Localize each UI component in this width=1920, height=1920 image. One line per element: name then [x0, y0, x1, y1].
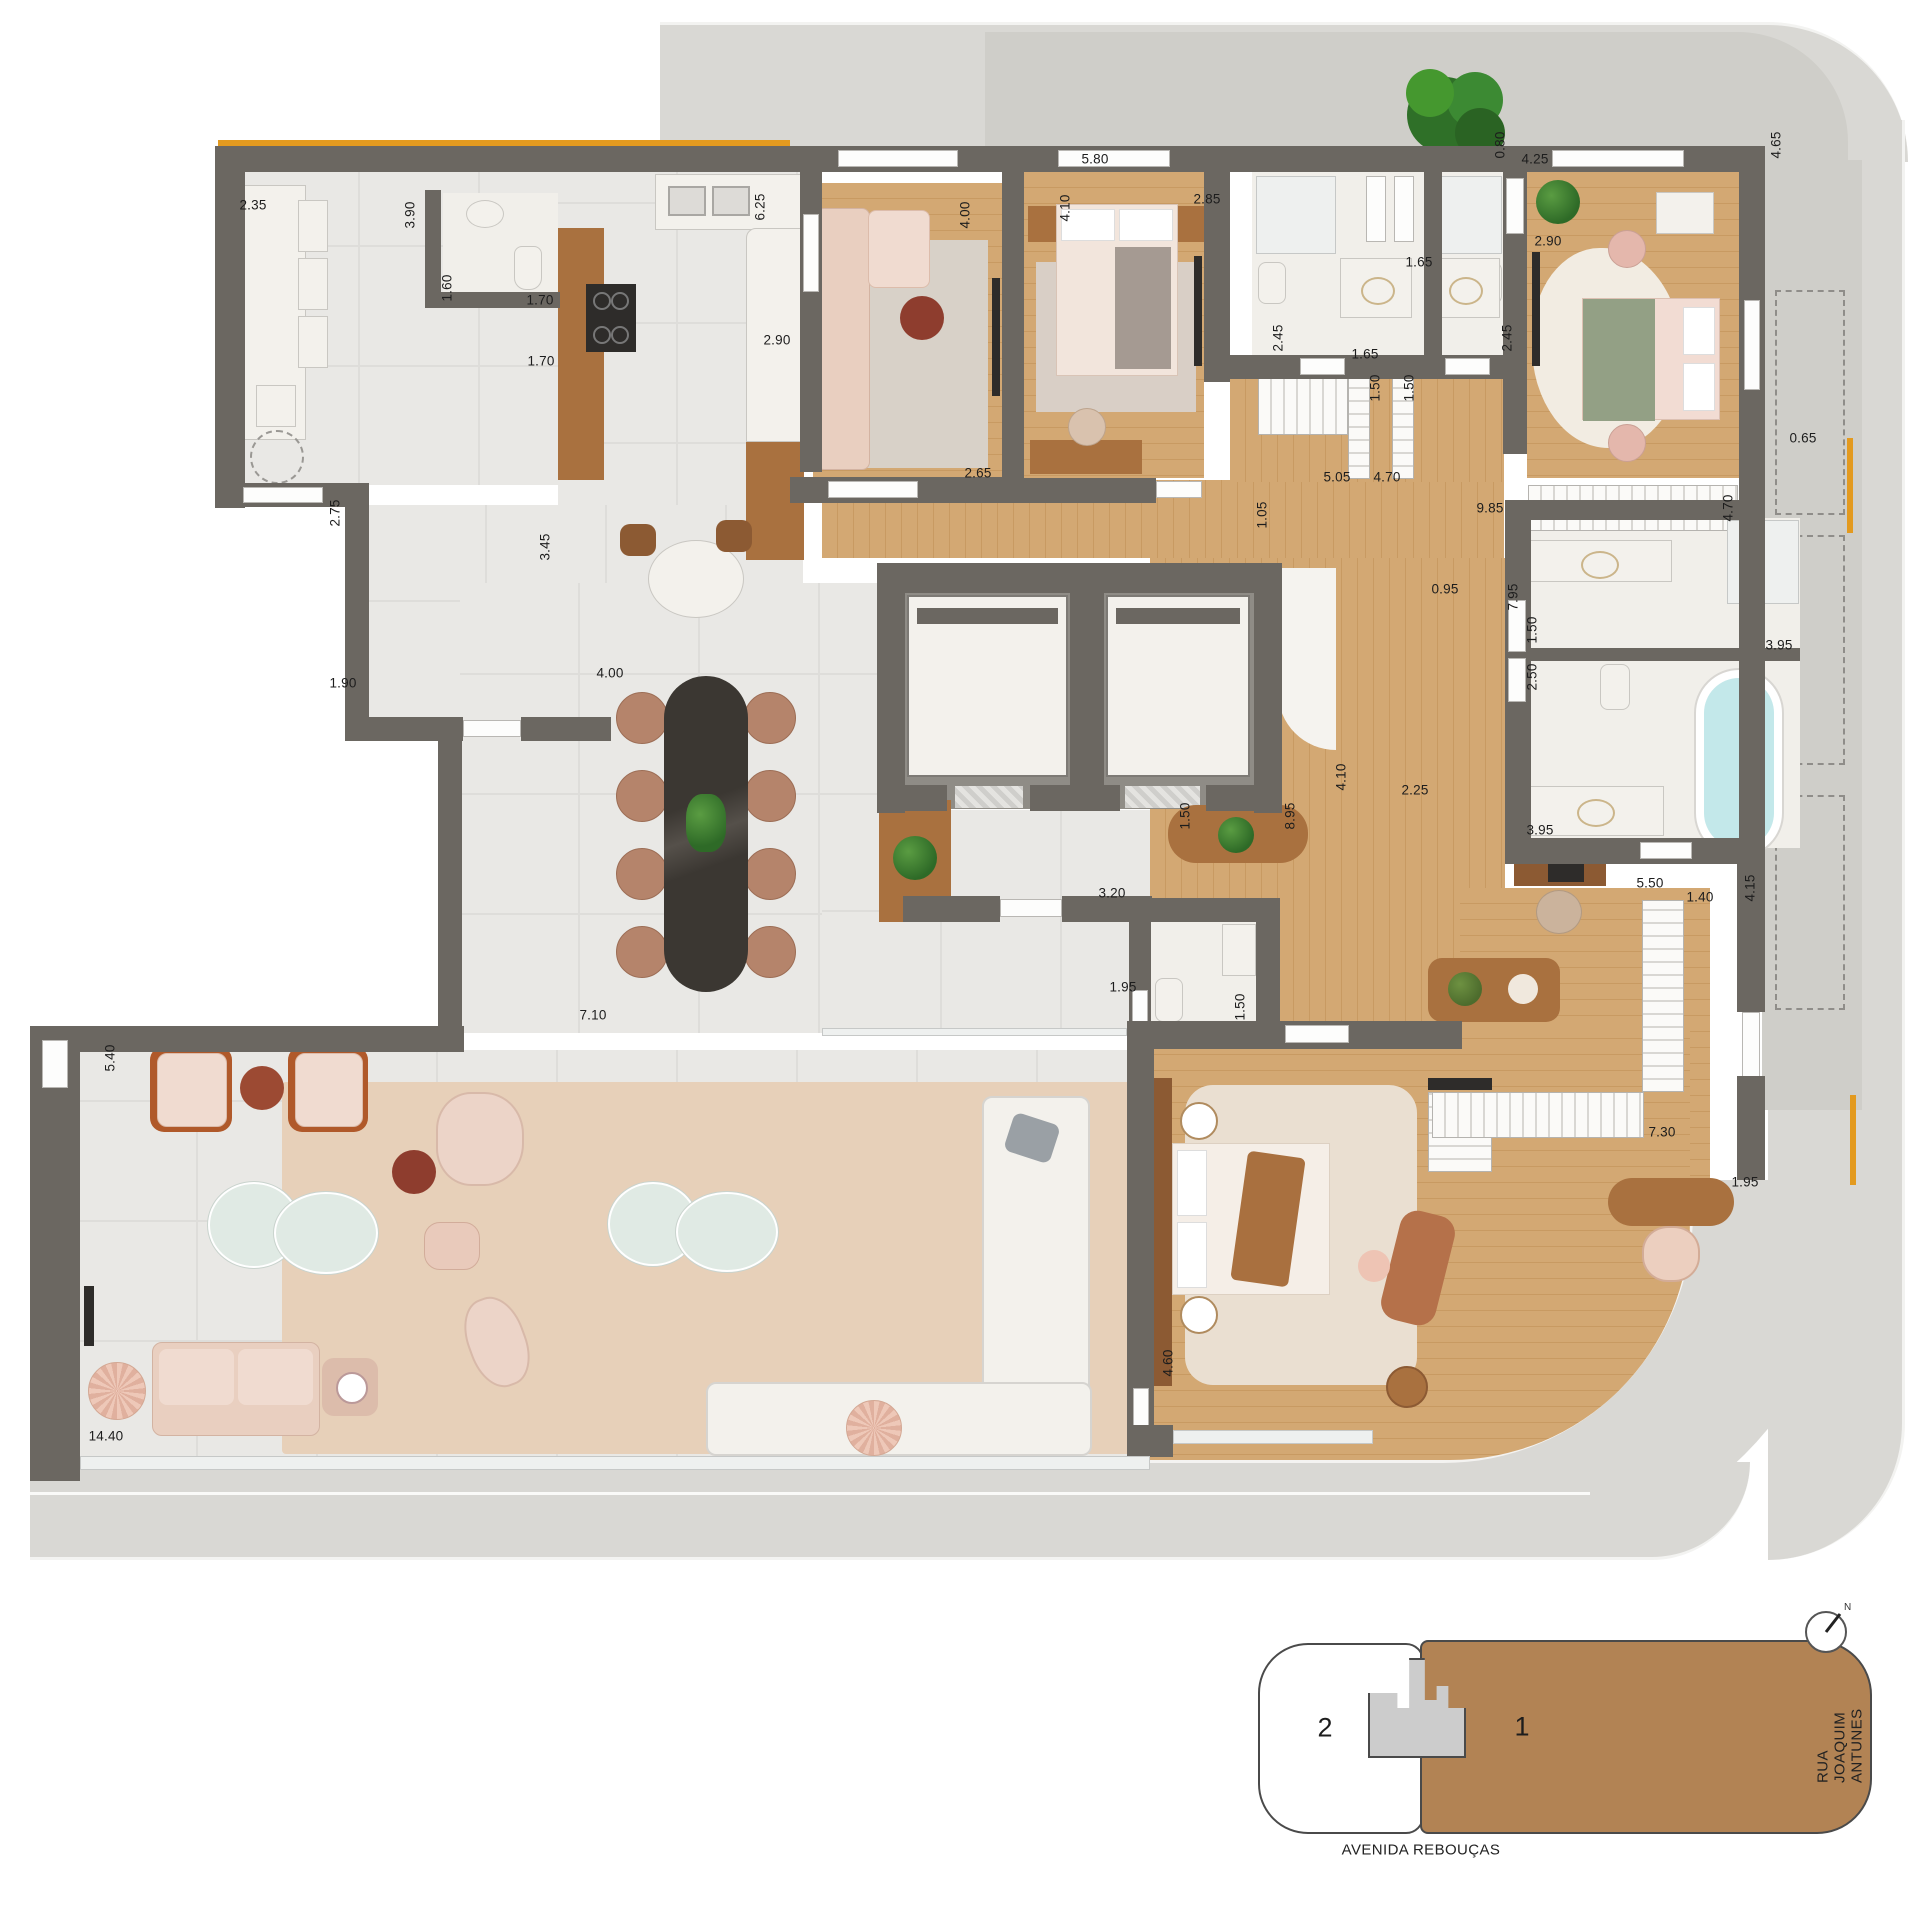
dimension-label: 3.20	[1098, 886, 1125, 901]
door	[803, 214, 819, 292]
kitchen-cabinet-left	[558, 228, 604, 480]
north-compass-icon: N	[1798, 1598, 1860, 1660]
elevator-wall-right	[1254, 563, 1282, 813]
dimension-label: 4.70	[1721, 494, 1736, 521]
laundry-dashed-circle	[250, 430, 304, 484]
bed2-ottoman-2	[1608, 424, 1646, 462]
dining-chair-l3	[616, 848, 668, 900]
dimension-label: 5.80	[1081, 152, 1108, 167]
dimension-label: 4.70	[1373, 470, 1400, 485]
washer-2	[298, 258, 328, 310]
dimension-label: 2.85	[1193, 192, 1220, 207]
dimension-label: 4.65	[1769, 131, 1784, 158]
master-headboard-panel	[1152, 1078, 1172, 1386]
wall	[1505, 838, 1765, 864]
living-loveseat	[152, 1342, 320, 1436]
dining-chair-l4	[616, 926, 668, 978]
door	[1000, 899, 1062, 917]
dimension-label: 6.25	[753, 193, 768, 220]
elevator-threshold-1	[955, 786, 1023, 808]
elevator-wall-bottom-1	[877, 785, 947, 811]
balcony-desk	[1608, 1178, 1734, 1226]
keyplan-unit-1	[1420, 1640, 1872, 1834]
living-south-glazing	[80, 1456, 1150, 1470]
bath1-shower	[1256, 176, 1336, 254]
living-side-table	[240, 1066, 284, 1110]
bed1-bed	[1056, 204, 1178, 376]
dining-chair-r2	[744, 770, 796, 822]
street-label-rua: RUA JOAQUIM ANTUNES	[1815, 1703, 1866, 1783]
wall	[30, 1026, 80, 1481]
wall	[438, 740, 462, 1036]
coffee-table-a2	[274, 1192, 378, 1274]
closet-desk-chair	[1536, 890, 1582, 934]
window	[1058, 150, 1170, 167]
keyplan-unit-1-label: 1	[1514, 1712, 1529, 1743]
master-tv-panel	[1428, 1078, 1492, 1090]
living-tv	[84, 1286, 94, 1346]
family-tv	[992, 278, 1000, 396]
facade-accent-right-2	[1850, 1095, 1856, 1185]
wall	[903, 896, 1000, 922]
window	[1742, 1012, 1760, 1078]
wall	[215, 146, 809, 172]
wc-sink	[466, 200, 504, 228]
living-armchair-2	[288, 1046, 368, 1132]
elevator-car-2-door	[1116, 608, 1240, 624]
washer-1	[298, 200, 328, 252]
dimension-label: 3.95	[1765, 638, 1792, 653]
dimension-label: 1.95	[1109, 980, 1136, 995]
hall-glazing	[822, 1028, 1127, 1036]
ac-unit-dashed-1	[1775, 290, 1845, 515]
wall	[1230, 146, 1530, 172]
dining-chair-l1	[616, 692, 668, 744]
bed2-bed	[1582, 298, 1720, 420]
closet-table	[1428, 958, 1560, 1022]
dimension-label: 0.65	[1789, 431, 1816, 446]
wall	[345, 483, 369, 741]
window	[1744, 300, 1760, 390]
floorplan-canvas: 2.353.901.601.701.706.252.904.002.655.80…	[0, 0, 1920, 1920]
wall	[1204, 146, 1230, 382]
dimension-label: 14.40	[89, 1429, 124, 1444]
dimension-label: 1.50	[1233, 993, 1248, 1020]
lavabo-toilet	[1155, 978, 1183, 1022]
dimension-label: 7.30	[1648, 1125, 1675, 1140]
dimension-label: 8.95	[1283, 802, 1298, 829]
master-south-glazing	[1173, 1430, 1373, 1444]
dimension-label: 4.00	[596, 666, 623, 681]
kitchen-sink-1	[668, 186, 706, 216]
sidewalk-curb-line	[30, 1492, 1590, 1495]
dimension-label: 5.40	[103, 1044, 118, 1071]
dimension-label: 2.90	[1534, 234, 1561, 249]
living-armchair-1	[150, 1046, 232, 1132]
dining-chair-r4	[744, 926, 796, 978]
door	[1300, 358, 1345, 375]
dimension-label: 1.50	[1368, 374, 1383, 401]
washer-3	[298, 316, 328, 368]
pleated-pouf-1	[88, 1362, 146, 1420]
wall	[1024, 478, 1156, 503]
balcony-desk-chair	[1642, 1226, 1700, 1282]
master-nightstand-2	[1180, 1296, 1218, 1334]
coffee-table-b2	[676, 1192, 778, 1272]
bed1-nightstand-right	[1176, 206, 1206, 242]
dimension-label: 2.45	[1500, 324, 1515, 351]
family-sofa	[816, 208, 870, 470]
closet-wardrobe-vertical	[1642, 900, 1684, 1092]
family-sofa-chaise	[868, 210, 930, 288]
door	[1445, 358, 1490, 375]
facade-accent-right-1	[1847, 438, 1853, 533]
bed1-tv	[1194, 256, 1202, 366]
dimension-label: 5.50	[1636, 876, 1663, 891]
elevator-wall-mid	[1070, 563, 1104, 785]
bed2-plant	[1536, 180, 1580, 224]
dimension-label: 7.95	[1506, 583, 1521, 610]
door	[1285, 1025, 1349, 1043]
foyer-curved-partition	[1278, 568, 1336, 750]
dimension-label: 1.60	[440, 274, 455, 301]
wall	[1739, 478, 1765, 860]
lavabo-basin	[1222, 924, 1256, 976]
door	[828, 481, 918, 498]
breakfast-chair-2	[716, 520, 752, 552]
master-bed	[1172, 1143, 1330, 1295]
window	[243, 487, 323, 503]
dimension-label: 2.75	[328, 499, 343, 526]
wall	[1737, 1076, 1765, 1180]
door	[1132, 990, 1148, 1022]
street-label-avenida: AVENIDA REBOUÇAS	[1342, 1842, 1501, 1859]
bath1-toilet	[1258, 262, 1286, 304]
sidewalk-bottom	[30, 1462, 1750, 1560]
bath-linen-closet-2	[1394, 176, 1414, 242]
keyplan-unit-2-label: 2	[1317, 1713, 1332, 1744]
dimension-label: 4.15	[1743, 874, 1758, 901]
master-pouf	[1358, 1250, 1390, 1282]
dimension-label: 3.45	[538, 533, 553, 560]
dining-chair-r1	[744, 692, 796, 744]
dimension-label: 3.95	[1526, 823, 1553, 838]
dimension-label: 1.90	[329, 676, 356, 691]
wall	[1505, 500, 1745, 520]
bed2-bench	[1656, 192, 1714, 234]
wall	[521, 717, 611, 741]
elevator-car-1-door	[917, 608, 1058, 624]
wall	[1127, 1425, 1173, 1457]
master-nightstand-1	[1180, 1102, 1218, 1140]
breakfast-chair-1	[620, 524, 656, 556]
dining-chair-l2	[616, 770, 668, 822]
living-clock-table	[322, 1358, 378, 1416]
wc-toilet	[514, 246, 542, 290]
dimension-label: 1.40	[1686, 890, 1713, 905]
dimension-label: 2.50	[1525, 663, 1540, 690]
door	[1506, 178, 1524, 234]
dimension-label: 4.60	[1161, 1349, 1176, 1376]
living-lounge-table	[392, 1150, 436, 1194]
living-lounge-chair	[436, 1092, 524, 1186]
dimension-label: 0.95	[1431, 582, 1458, 597]
bath1-vanity	[1340, 258, 1412, 318]
master-side-table	[1386, 1366, 1428, 1408]
mbath-toilet	[1600, 664, 1630, 710]
dimension-label: 1.70	[527, 354, 554, 369]
dimension-label: 1.50	[1402, 374, 1417, 401]
wall	[34, 1026, 464, 1052]
window	[1133, 1388, 1149, 1428]
dimension-label: 4.25	[1521, 152, 1548, 167]
stove	[586, 284, 636, 352]
dimension-label: 3.90	[403, 201, 418, 228]
elevator-wall-bottom-3	[1206, 785, 1282, 811]
bath-linen-closet-1	[1366, 176, 1386, 242]
dimension-label: 1.95	[1731, 1175, 1758, 1190]
wall	[1002, 172, 1024, 478]
dimension-label: 0.80	[1493, 131, 1508, 158]
bed2-ottoman-1	[1608, 230, 1646, 268]
dimension-label: 4.00	[958, 201, 973, 228]
kitchen-sink-2	[712, 186, 750, 216]
dimension-label: 7.10	[579, 1008, 606, 1023]
north-letter: N	[1844, 1602, 1851, 1613]
elevator-wall-bottom-2	[1030, 785, 1120, 811]
dimension-label: 1.05	[1255, 501, 1270, 528]
dimension-label: 2.90	[763, 333, 790, 348]
pleated-pouf-2	[846, 1400, 902, 1456]
bed1-desk-chair	[1068, 408, 1106, 446]
family-side-table	[900, 296, 944, 340]
living-ottoman	[424, 1222, 480, 1270]
window	[42, 1040, 68, 1088]
dimension-label: 1.50	[1525, 616, 1540, 643]
door	[463, 720, 521, 737]
dimension-label: 4.10	[1334, 763, 1349, 790]
dimension-label: 1.50	[1178, 802, 1193, 829]
dimension-label: 5.05	[1323, 470, 1350, 485]
dimension-label: 1.65	[1405, 255, 1432, 270]
laundry-sink	[256, 385, 296, 427]
dining-table	[664, 676, 748, 992]
dimension-label: 2.25	[1401, 783, 1428, 798]
bed2-tv	[1532, 252, 1540, 366]
dimension-label: 2.65	[964, 466, 991, 481]
wall	[345, 717, 463, 741]
wall	[1256, 898, 1280, 1026]
door	[1640, 842, 1692, 859]
wall	[1127, 1021, 1154, 1433]
door	[1156, 481, 1202, 498]
elevator-wall-left	[877, 563, 905, 813]
closet-wardrobe-horizontal	[1432, 1092, 1644, 1138]
bed1-nightstand-left	[1028, 206, 1058, 242]
dining-chair-r3	[744, 848, 796, 900]
dimension-label: 9.85	[1476, 501, 1503, 516]
mbath-vanity-top	[1522, 540, 1672, 582]
wall	[1151, 898, 1261, 922]
door	[1508, 658, 1526, 702]
dimension-label: 2.45	[1271, 324, 1286, 351]
window	[1552, 150, 1684, 167]
dimension-label: 1.65	[1351, 347, 1378, 362]
dressing-wardrobe-l	[1258, 377, 1348, 435]
dimension-label: 1.70	[526, 293, 553, 308]
window	[838, 150, 958, 167]
dimension-label: 4.10	[1058, 194, 1073, 221]
dimension-label: 2.35	[239, 198, 266, 213]
